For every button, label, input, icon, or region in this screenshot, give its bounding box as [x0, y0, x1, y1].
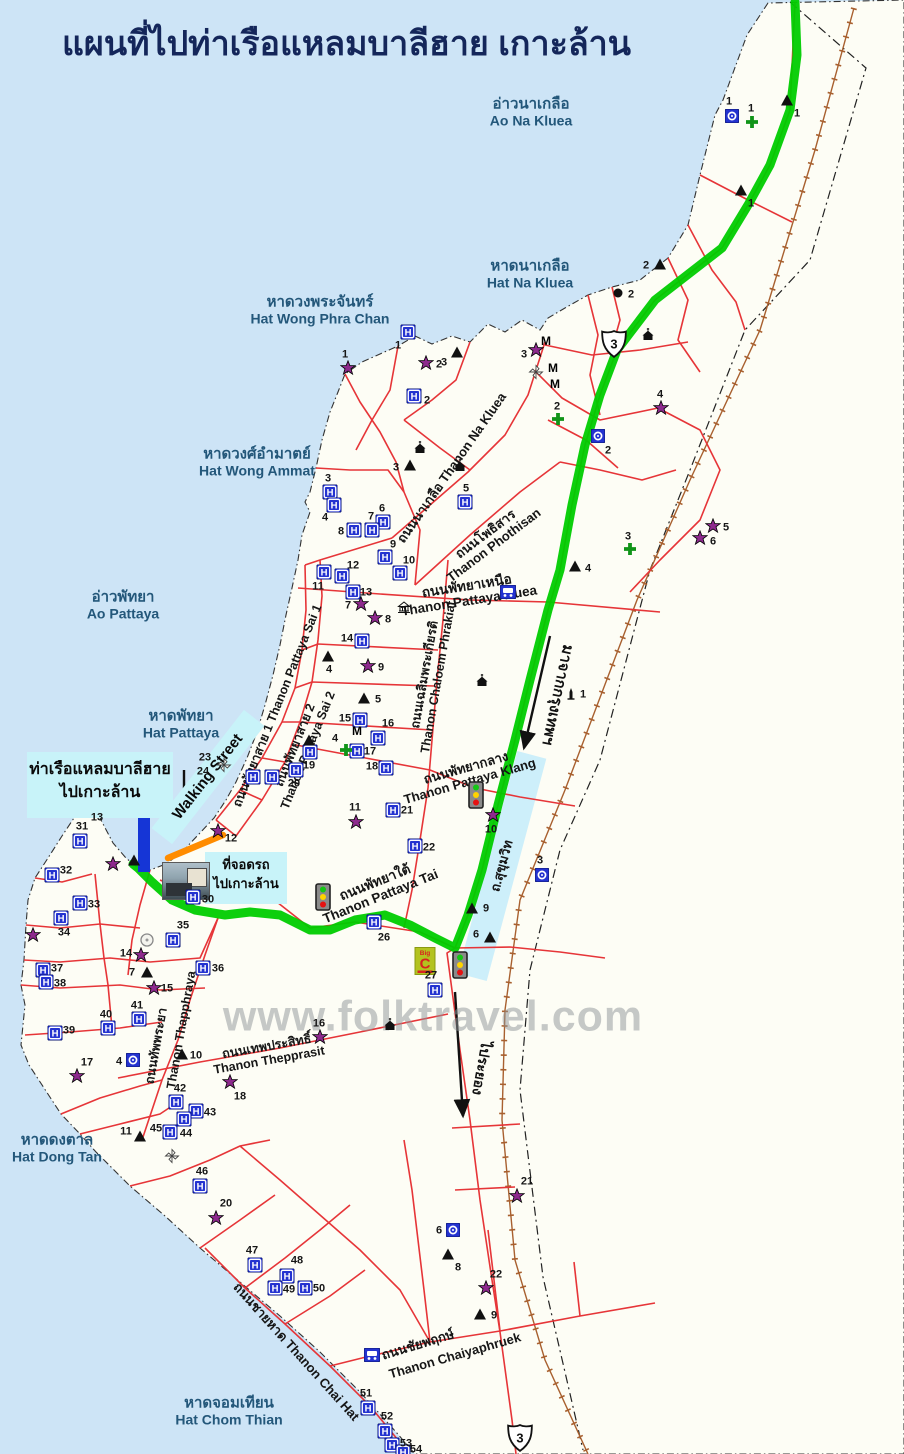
svg-text:H: H [269, 773, 276, 784]
hotel-marker: H [39, 975, 54, 990]
temple-triangle-marker [465, 902, 479, 915]
monument-icon [566, 686, 576, 700]
sea-label: หาดวงพระจันทร์Hat Wong Phra Chan [251, 293, 390, 326]
marker-number: 35 [177, 921, 189, 932]
marker-number: 34 [58, 928, 70, 939]
hospital-cross-icon [746, 116, 759, 129]
windmill-icon [165, 1149, 180, 1164]
hotel-marker: H [265, 770, 280, 785]
hotel-marker: H [54, 911, 69, 926]
hotel-marker: H [73, 896, 88, 911]
svg-text:H: H [105, 1024, 112, 1035]
hotel-marker: H [193, 1179, 208, 1194]
marker-number: 50 [313, 1284, 325, 1295]
marker-number: 44 [180, 1129, 192, 1140]
marker-number: 30 [202, 895, 214, 906]
marker-number: 54 [410, 1445, 422, 1454]
marker-number: 47 [246, 1246, 258, 1257]
marker-number: 1 [580, 690, 586, 701]
hotel-marker: H [132, 1012, 147, 1027]
star-marker [348, 814, 364, 830]
m-marker: M [548, 362, 558, 374]
svg-text:H: H [77, 837, 84, 848]
bus-icon [500, 585, 516, 599]
m-marker: M [550, 378, 560, 390]
svg-text:H: H [170, 936, 177, 947]
hotel-marker: H [163, 1125, 178, 1140]
marker-number: 4 [332, 734, 338, 745]
pattaya-map: www.folktravel.com ท่าเรือแหลมบาลีฮาย ไป… [0, 0, 904, 1454]
temple-triangle-marker [140, 966, 154, 979]
hotel-marker: H [355, 634, 370, 649]
marker-number: 14 [341, 634, 353, 645]
hotel-marker: H [379, 761, 394, 776]
marker-number: 6 [710, 537, 716, 548]
sea-label-eng: Hat Wong Ammat [199, 463, 315, 479]
marker-number: 9 [390, 540, 396, 551]
marker-number: 51 [360, 1389, 372, 1400]
hospital-cross-icon [340, 744, 353, 757]
marker-number: 2 [424, 396, 430, 407]
marker-number: 27 [425, 971, 437, 982]
marker-number: 37 [51, 964, 63, 975]
sea-label-thai: หาดนาเกลือ [487, 257, 573, 274]
hotel-marker: H [101, 1021, 116, 1036]
sea-label-thai: อ่าวพัทยา [87, 588, 159, 605]
marker-number: 10 [403, 556, 415, 567]
marker-number: 31 [76, 822, 88, 833]
marker-number: 43 [204, 1108, 216, 1119]
svg-text:H: H [302, 1284, 309, 1295]
svg-text:H: H [321, 568, 328, 579]
sea-label-eng: Ao Pattaya [87, 606, 159, 622]
marker-number: 22 [490, 1270, 502, 1281]
svg-text:H: H [382, 1427, 389, 1438]
marker-number: 49 [283, 1285, 295, 1296]
svg-text:H: H [382, 553, 389, 564]
info-icon [126, 1053, 140, 1067]
hotel-marker: H [327, 498, 342, 513]
star-marker [210, 823, 226, 839]
sea-label-eng: Hat Chom Thian [175, 1412, 282, 1428]
svg-text:H: H [49, 871, 56, 882]
marker-number: 1 [342, 350, 348, 361]
marker-number: 21 [401, 806, 413, 817]
temple-triangle-marker [450, 346, 464, 359]
marker-number: 5 [723, 523, 729, 534]
marker-number: 11 [312, 582, 324, 593]
bus-icon [364, 1348, 380, 1362]
page-title: แผนที่ไปท่าเรือแหลมบาลีฮาย เกาะล้าน [62, 16, 631, 70]
marker-number: 8 [338, 527, 344, 538]
svg-text:H: H [252, 1261, 259, 1272]
temple-triangle-marker [127, 854, 141, 867]
svg-text:H: H [375, 734, 382, 745]
star-marker [509, 1188, 525, 1204]
marker-number: 32 [60, 866, 72, 877]
hospital-cross-icon [624, 543, 637, 556]
hotel-marker: H [166, 933, 181, 948]
marker-number: 4 [322, 513, 328, 524]
temple-triangle-marker [357, 692, 371, 705]
temple-icon [641, 327, 655, 341]
marker-number: 20 [288, 779, 300, 790]
marker-number: 19 [303, 761, 315, 772]
hotel-marker: H [248, 1258, 263, 1273]
hotel-marker: H [386, 803, 401, 818]
svg-text:H: H [58, 914, 65, 925]
svg-text:H: H [136, 1015, 143, 1026]
marker-number: 22 [423, 843, 435, 854]
sea-label-thai: หาดดงตาล [12, 1131, 102, 1148]
marker-number: 39 [63, 1026, 75, 1037]
marker-number: 1 [748, 199, 754, 210]
marker-number: 38 [54, 979, 66, 990]
marker-number: 6 [379, 504, 385, 515]
star-marker [478, 1280, 494, 1296]
sea-label-thai: หาดจอมเทียน [175, 1394, 282, 1411]
svg-text:H: H [389, 1441, 396, 1452]
marker-number: 3 [537, 856, 543, 867]
hotel-marker: H [48, 1026, 63, 1041]
svg-text:H: H [307, 748, 314, 759]
svg-text:H: H [432, 986, 439, 997]
temple-icon [383, 1017, 397, 1031]
hotel-marker: H [401, 325, 416, 340]
sea-label-thai: อ่าวนาเกลือ [490, 95, 572, 112]
marker-number: 18 [234, 1092, 246, 1103]
svg-text:H: H [411, 392, 418, 403]
hotel-marker: H [347, 523, 362, 538]
sea-label-eng: Hat Wong Phra Chan [251, 311, 390, 327]
svg-text:3: 3 [610, 336, 617, 351]
temple-triangle-marker [302, 734, 316, 747]
marker-number: 4 [585, 564, 591, 575]
parking-label-box: ที่จอดรถ ไปเกาะล้าน [205, 852, 287, 904]
temple-triangle-marker [473, 1308, 487, 1321]
traffic-light-icon [452, 951, 468, 979]
svg-text:H: H [52, 1029, 59, 1040]
svg-text:H: H [405, 328, 412, 339]
temple-icon [453, 458, 467, 472]
marker-number: 3 [325, 474, 331, 485]
marker-number: 7 [345, 601, 351, 612]
sea-label-eng: Hat Na Kluea [487, 275, 573, 291]
hotel-marker: H [196, 961, 211, 976]
marker-number: 9 [378, 663, 384, 674]
hotel-marker: H [73, 834, 88, 849]
windmill-icon [529, 365, 544, 380]
svg-text:H: H [197, 1182, 204, 1193]
hotel-marker: H [246, 770, 261, 785]
marker-number: 4 [657, 390, 663, 401]
sea-label-thai: หาดวงพระจันทร์ [251, 293, 390, 310]
parking-label-line1: ที่จอดรถ [205, 856, 287, 875]
pier-label-box: ท่าเรือแหลมบาลีฮาย ไปเกาะล้าน [27, 752, 173, 818]
traffic-light-icon [468, 781, 484, 809]
marker-number: 7 [368, 512, 374, 523]
marker-number: 8 [385, 615, 391, 626]
sea-label: หาดพัทยาHat Pattaya [143, 707, 219, 740]
marker-number: 16 [313, 1019, 325, 1030]
marker-number: 3 [441, 358, 447, 369]
marker-number: 17 [364, 747, 376, 758]
svg-text:H: H [354, 747, 361, 758]
sea-label-thai: หาดพัทยา [143, 707, 219, 724]
svg-text:H: H [250, 773, 257, 784]
sea-label: หาดดงตาลHat Dong Tan [12, 1131, 102, 1164]
hotel-marker: H [361, 1401, 376, 1416]
marker-number: 20 [220, 1199, 232, 1210]
star-marker [25, 927, 41, 943]
marker-number: 16 [382, 719, 394, 730]
marker-number: 2 [605, 446, 611, 457]
info-icon [591, 429, 605, 443]
marker-number: 2 [628, 290, 634, 301]
marker-number: 12 [225, 834, 237, 845]
hotel-marker: H [378, 1424, 393, 1439]
svg-text:H: H [272, 1284, 279, 1295]
svg-text:H: H [390, 806, 397, 817]
info-icon [725, 109, 739, 123]
marker-number: 26 [378, 933, 390, 944]
marker-number: 42 [174, 1084, 186, 1095]
temple-triangle-marker [403, 459, 417, 472]
marker-number: 7 [129, 968, 135, 979]
marker-number: 10 [485, 825, 497, 836]
marker-number: 6 [436, 1226, 442, 1237]
traffic-light-icon [315, 883, 331, 911]
star-marker [133, 947, 149, 963]
svg-text:H: H [284, 1272, 291, 1283]
marker-number: 36 [212, 964, 224, 975]
marker-number: 52 [381, 1412, 393, 1423]
marker-number: 15 [161, 984, 173, 995]
hotel-marker: H [45, 868, 60, 883]
star-marker [208, 1210, 224, 1226]
svg-text:H: H [380, 518, 387, 529]
hospital-cross-icon [552, 413, 565, 426]
star-marker [485, 807, 501, 823]
svg-text:H: H [293, 766, 300, 777]
marker-number: 1 [395, 341, 401, 352]
svg-text:H: H [331, 501, 338, 512]
star-marker [222, 1074, 238, 1090]
marker-number: 17 [81, 1058, 93, 1069]
sea-label-eng: Hat Pattaya [143, 725, 219, 741]
marker-number: 4 [326, 665, 332, 676]
sea-label-eng: Ao Na Kluea [490, 113, 572, 129]
m-marker: M [352, 725, 362, 737]
sea-label: หาดจอมเทียนHat Chom Thian [175, 1394, 282, 1427]
hotel-marker: H [371, 731, 386, 746]
hotel-marker: H [365, 523, 380, 538]
svg-text:H: H [359, 637, 366, 648]
hotel-marker: H [186, 890, 201, 905]
marker-number: 1 [726, 97, 732, 108]
svg-text:H: H [397, 569, 404, 580]
marker-number: 12 [347, 561, 359, 572]
svg-text:H: H [173, 1098, 180, 1109]
hotel-marker: H [428, 983, 443, 998]
temple-icon [413, 440, 427, 454]
marker-number: 11 [120, 1127, 132, 1138]
marker-number: 41 [131, 1001, 143, 1012]
temple-triangle-marker [653, 258, 667, 271]
svg-text:H: H [193, 1107, 200, 1118]
svg-text:H: H [383, 764, 390, 775]
hotel-marker: H [317, 565, 332, 580]
star-marker [360, 658, 376, 674]
star-marker [653, 400, 669, 416]
hotel-marker: H [367, 915, 382, 930]
marker-number: 46 [196, 1167, 208, 1178]
temple-triangle-marker [568, 560, 582, 573]
pier-label-line1: ท่าเรือแหลมบาลีฮาย [27, 758, 173, 781]
sea-label: อ่าวนาเกลือAo Na Kluea [490, 95, 572, 128]
marker-number: 1 [794, 109, 800, 120]
temple-icon [475, 673, 489, 687]
marker-number: 6 [473, 930, 479, 941]
svg-text:H: H [77, 899, 84, 910]
watermark: www.folktravel.com [223, 993, 643, 1042]
pier-label-line2: ไปเกาะล้าน [27, 781, 173, 804]
svg-text:H: H [412, 842, 419, 853]
hotel-marker: H [169, 1095, 184, 1110]
sea-label: หาดวงศ์อำมาตย์Hat Wong Ammat [199, 445, 315, 478]
marker-number: 3 [625, 532, 631, 543]
hotel-marker: H [378, 550, 393, 565]
star-marker [312, 1029, 328, 1045]
star-marker [692, 530, 708, 546]
marker-number: 5 [375, 695, 381, 706]
marker-number: 5 [463, 484, 469, 495]
marker-number: 23 [199, 753, 211, 764]
svg-text:H: H [371, 918, 378, 929]
temple-triangle-marker [483, 931, 497, 944]
svg-text:H: H [462, 498, 469, 509]
marker-number: 9 [483, 904, 489, 915]
marker-number: 18 [366, 762, 378, 773]
marker-number: 15 [339, 714, 351, 725]
star-marker [367, 610, 383, 626]
info-icon [446, 1223, 460, 1237]
parking-label-line2: ไปเกาะล้าน [205, 875, 287, 894]
highway-shield: 3 [507, 1424, 533, 1452]
svg-text:H: H [167, 1128, 174, 1139]
hotel-marker: H [407, 389, 422, 404]
hotel-marker: H [268, 1281, 283, 1296]
svg-text:H: H [43, 978, 50, 989]
marker-number: 2 [554, 402, 560, 413]
marker-number: 24 [197, 767, 209, 778]
svg-text:3: 3 [516, 1430, 523, 1445]
sea-label-thai: หาดวงศ์อำมาตย์ [199, 445, 315, 462]
marker-number: 1 [748, 104, 754, 115]
hotel-marker: H [393, 566, 408, 581]
temple-triangle-marker [780, 94, 794, 107]
svg-text:H: H [369, 526, 376, 537]
star-marker [418, 355, 434, 371]
marker-number: 21 [521, 1177, 533, 1188]
marker-number: 14 [120, 949, 132, 960]
marker-number: 9 [491, 1311, 497, 1322]
marker-number: 13 [91, 813, 103, 824]
temple-triangle-marker [441, 1248, 455, 1261]
marker-number: 33 [88, 900, 100, 911]
marker-number: 13 [360, 588, 372, 599]
temple-triangle-marker [133, 1130, 147, 1143]
hotel-marker: H [458, 495, 473, 510]
m-marker: M [541, 335, 551, 347]
svg-text:H: H [190, 893, 197, 904]
svg-text:H: H [181, 1115, 188, 1126]
svg-text:H: H [339, 572, 346, 583]
sea-label: อ่าวพัทยาAo Pattaya [87, 588, 159, 621]
svg-text:H: H [200, 964, 207, 975]
star-marker [69, 1068, 85, 1084]
temple-triangle-marker [734, 184, 748, 197]
viewpoint-icon [140, 933, 155, 948]
marker-number: 48 [291, 1256, 303, 1267]
hotel-marker: H [303, 745, 318, 760]
hotel-marker: H [408, 839, 423, 854]
marker-number: 8 [455, 1263, 461, 1274]
marker-number: 10 [190, 1051, 202, 1062]
temple-triangle-marker [175, 1048, 189, 1061]
sea-label: หาดนาเกลือHat Na Kluea [487, 257, 573, 290]
marker-number: 4 [116, 1057, 122, 1068]
svg-text:H: H [365, 1404, 372, 1415]
sea-label-eng: Hat Dong Tan [12, 1149, 102, 1165]
marker-number: 3 [521, 350, 527, 361]
marker-number: 45 [150, 1124, 162, 1135]
dot-marker [613, 288, 623, 298]
marker-number: 40 [100, 1010, 112, 1021]
info-icon [535, 868, 549, 882]
highway-shield: 3 [601, 330, 627, 358]
hotel-marker: H [298, 1281, 313, 1296]
marker-number: 11 [349, 803, 361, 814]
museum-icon [397, 601, 411, 614]
star-marker [146, 980, 162, 996]
svg-text:H: H [351, 526, 358, 537]
star-marker [340, 360, 356, 376]
temple-triangle-marker [321, 650, 335, 663]
windmill-icon [217, 758, 232, 773]
marker-number: 3 [393, 463, 399, 474]
hotel-marker: H [289, 763, 304, 778]
marker-number: 2 [643, 261, 649, 272]
hotel-marker: H [177, 1112, 192, 1127]
star-marker [105, 856, 121, 872]
